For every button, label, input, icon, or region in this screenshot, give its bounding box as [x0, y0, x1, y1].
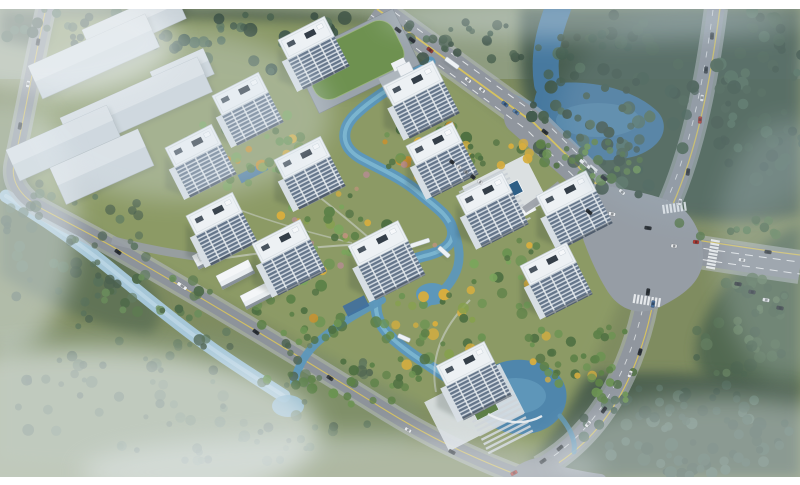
- car: [671, 244, 677, 248]
- car: [644, 226, 651, 231]
- frame-bottom: [0, 477, 800, 485]
- car: [693, 240, 699, 244]
- car: [651, 300, 656, 307]
- aerial-rendering-page: [0, 0, 800, 485]
- scene-svg: [0, 0, 800, 485]
- car: [646, 288, 651, 295]
- frame-top: [0, 0, 800, 9]
- scene-layers: [0, 0, 800, 485]
